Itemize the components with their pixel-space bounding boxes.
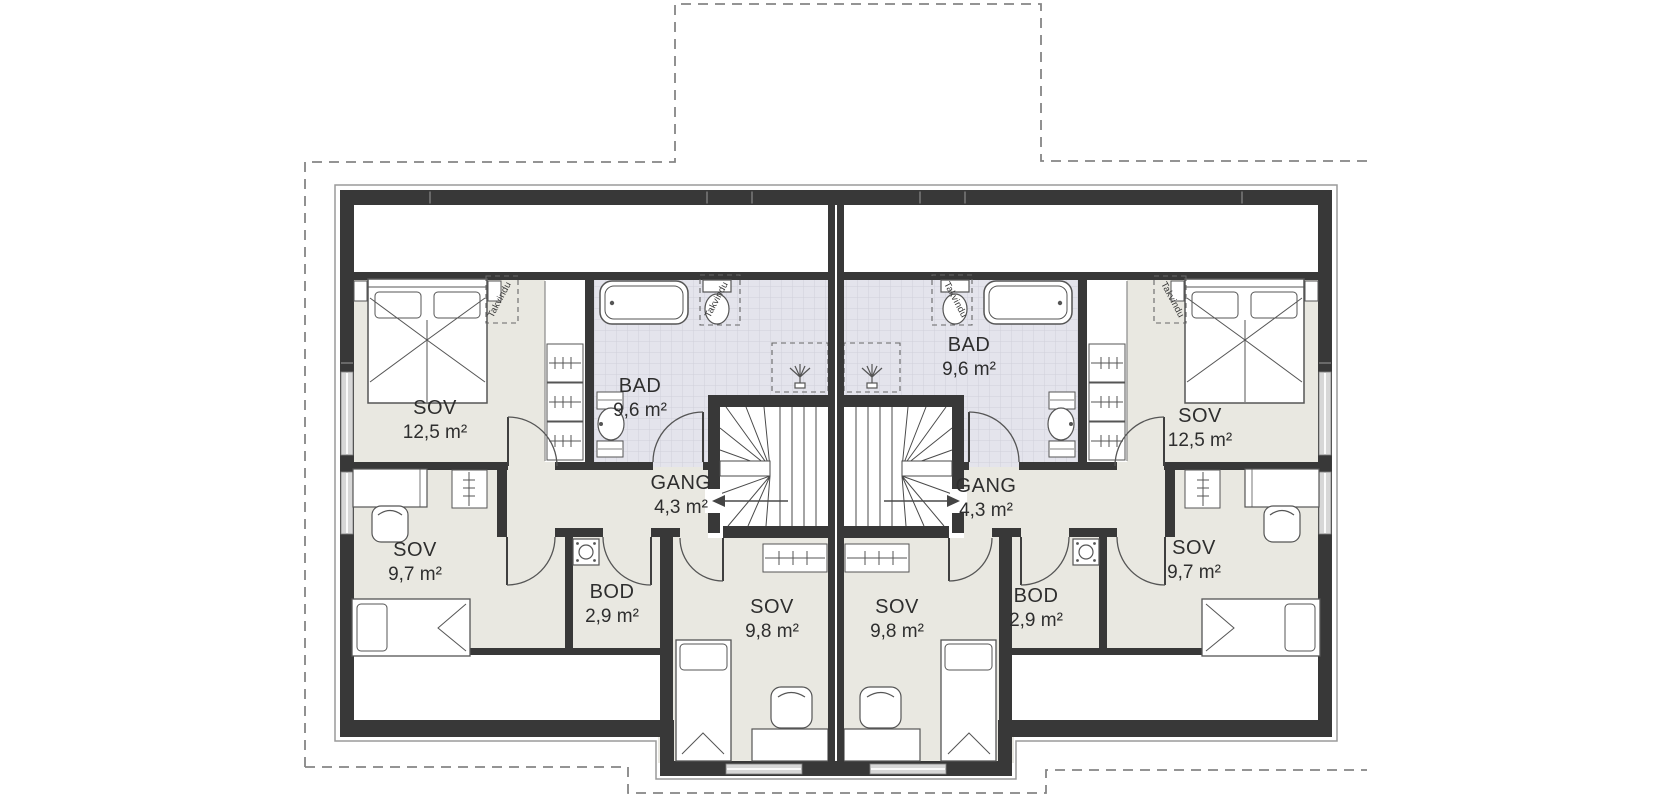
- room-area: 9,8 m²: [745, 621, 799, 642]
- room-area: 4,3 m²: [654, 497, 708, 518]
- unit-left: [340, 190, 836, 776]
- room-area: 2,9 m²: [585, 606, 639, 627]
- room-label: SOV: [413, 397, 457, 419]
- wardrobe-icon: [547, 422, 583, 460]
- floor-plan-svg: SOV 12,5 m² BAD 9,6 m² GANG 4,3 m² SOV 9…: [0, 0, 1670, 800]
- room-label: GANG: [956, 475, 1017, 497]
- room-area: 9,8 m²: [870, 621, 924, 642]
- chair-icon: [372, 506, 408, 542]
- room-label: SOV: [393, 539, 437, 561]
- floor-plan-page: SOV 12,5 m² BAD 9,6 m² GANG 4,3 m² SOV 9…: [0, 0, 1670, 800]
- nightstand-icon: [354, 281, 367, 301]
- desk-icon: [752, 729, 828, 761]
- room-area: 9,7 m²: [388, 564, 442, 585]
- room-area: 4,3 m²: [959, 500, 1013, 521]
- room-area: 2,9 m²: [1009, 610, 1063, 631]
- room-label: BAD: [619, 375, 662, 397]
- room-area: 12,5 m²: [403, 422, 467, 443]
- double-bed-icon: [368, 279, 487, 403]
- wardrobe-icon: [763, 544, 827, 572]
- room-area: 12,5 m²: [1168, 430, 1232, 451]
- single-bed-icon: [676, 640, 731, 761]
- room-label: GANG: [651, 472, 712, 494]
- room-area: 9,6 m²: [613, 400, 667, 421]
- single-bed-icon: [352, 599, 470, 656]
- room-label: SOV: [1172, 537, 1216, 559]
- wardrobe-icon: [452, 470, 487, 508]
- room-label: BOD: [1014, 585, 1059, 607]
- room-label: BOD: [590, 581, 635, 603]
- wardrobe-icon: [547, 344, 583, 382]
- chair-icon: [771, 687, 812, 728]
- room-label: SOV: [1178, 405, 1222, 427]
- room-label: SOV: [750, 596, 794, 618]
- room-area: 9,6 m²: [942, 359, 996, 380]
- room-area: 9,7 m²: [1167, 562, 1221, 583]
- desk-icon: [353, 469, 427, 507]
- room-label: SOV: [875, 596, 919, 618]
- wardrobe-icon: [547, 383, 583, 421]
- room-label: BAD: [948, 334, 991, 356]
- unit-right: [836, 190, 1332, 776]
